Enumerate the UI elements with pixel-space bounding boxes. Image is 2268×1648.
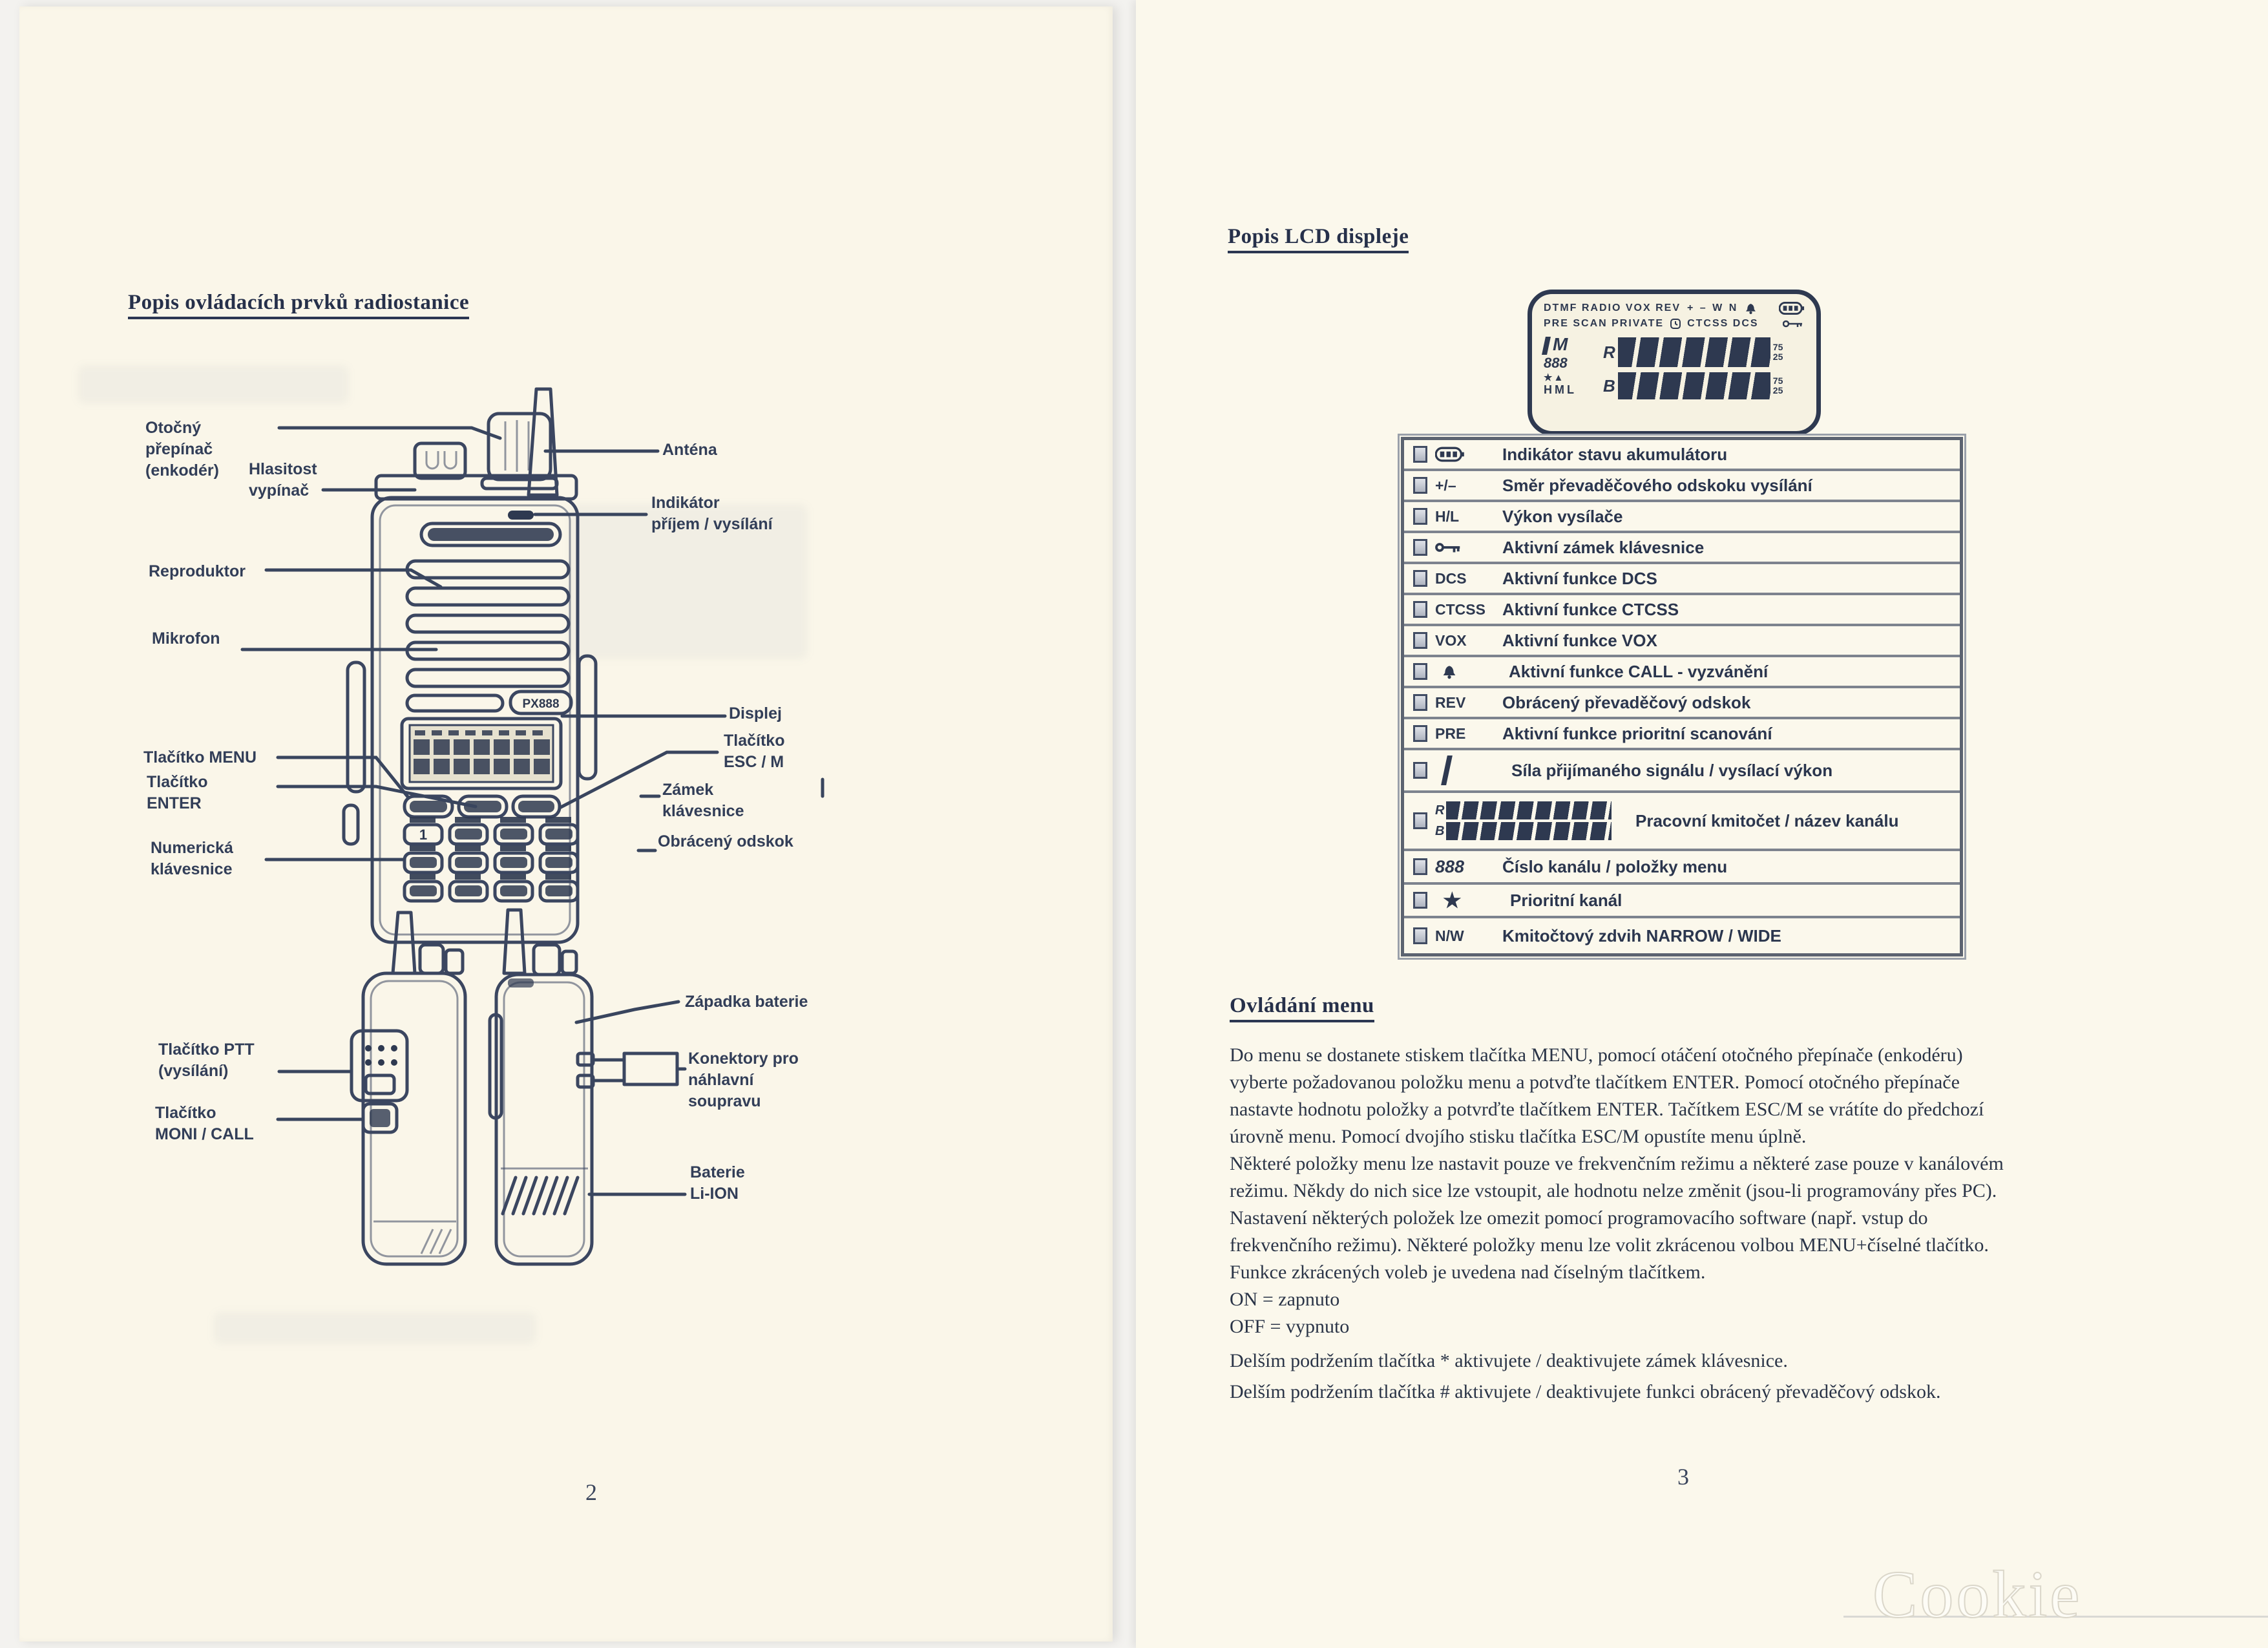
label-moni-call-button: Tlačítko MONI / CALL	[155, 1103, 254, 1145]
frequency-display-icon: R B	[1435, 801, 1635, 840]
label-headset-connectors: Konektory pro náhlavní soupravu	[688, 1048, 799, 1112]
label-volume-switch: Hlasitost vypínač	[249, 459, 317, 502]
lcd-symbol: DCS	[1435, 570, 1502, 587]
priority-star-icon: ★	[1435, 888, 1510, 913]
checkbox-mark-icon	[1413, 762, 1427, 779]
page-title-right: Popis LCD displeje	[1228, 225, 1409, 253]
table-row: VOX Aktivní funkce VOX	[1404, 624, 1960, 655]
checkbox-mark-icon	[1413, 539, 1427, 556]
lcd-symbol: H/L	[1435, 508, 1502, 525]
label-esc-button: Tlačítko ESC / M	[724, 730, 784, 773]
checkbox-mark-icon	[1413, 570, 1427, 587]
legend-label: Směr převaděčového odskoku vysílání	[1502, 476, 1812, 496]
checkbox-mark-icon	[1413, 446, 1427, 463]
lcd-tone-indicators: CTCSS DCS	[1687, 318, 1758, 330]
checkbox-mark-icon	[1413, 694, 1427, 711]
battery-pack	[503, 1178, 578, 1214]
checkbox-mark-icon	[1413, 508, 1427, 525]
table-row: H/L Výkon vysílače	[1404, 500, 1960, 531]
label-reverse-shift: Obrácený odskok	[658, 831, 793, 852]
table-row: N/W Kmitočtový zdvih NARROW / WIDE	[1404, 916, 1960, 953]
table-row: Aktivní zámek klávesnice	[1404, 531, 1960, 562]
label-enter-button: Tlačítko ENTER	[147, 772, 207, 814]
numeric-keypad: 1	[404, 817, 578, 901]
lcd-indicators-row2: PRE SCAN PRIVATE	[1544, 318, 1664, 330]
menu-shortcut-notes: Delším podržením tlačítka * aktivujete /…	[1230, 1346, 2244, 1408]
label-antenna: Anténa	[662, 439, 717, 461]
encoder-knob	[488, 414, 551, 480]
lcd-symbol: PRE	[1435, 725, 1502, 743]
lcd-symbol: +/–	[1435, 477, 1502, 494]
page-number-left: 2	[585, 1479, 597, 1506]
table-row: ★ Prioritní kanál	[1404, 882, 1960, 916]
checkbox-mark-icon	[1413, 632, 1427, 649]
side-view-right	[490, 910, 593, 1264]
lcd-priority-stars: ★▲	[1544, 372, 1598, 383]
function-buttons	[404, 796, 560, 817]
lcd-symbol: VOX	[1435, 632, 1502, 650]
rx-tx-indicator	[508, 511, 534, 520]
lcd-channel-digits: 888	[1544, 355, 1598, 372]
lcd-display-graphic: DTMF RADIO VOX REV + – W N PRE SCAN PRIV…	[1528, 290, 1821, 436]
label-battery: Baterie Li-ION	[690, 1162, 745, 1205]
legend-label: Kmitočtový zdvih NARROW / WIDE	[1502, 926, 1781, 946]
lcd-symbol: CTCSS	[1435, 601, 1502, 618]
legend-label: Aktivní funkce CTCSS	[1502, 600, 1679, 620]
table-row: 888 Číslo kanálu / položky menu	[1404, 849, 1960, 882]
legend-label: Síla přijímaného signálu / vysílací výko…	[1511, 761, 1832, 781]
checkbox-mark-icon	[1413, 477, 1427, 494]
clock-icon	[1670, 319, 1681, 329]
label-display: Displej	[729, 703, 782, 724]
model-label: PX888	[522, 697, 559, 711]
legend-label: Aktivní funkce prioritní scanování	[1502, 724, 1772, 744]
legend-label: Obrácený převaděčový odskok	[1502, 693, 1750, 713]
connector-bracket	[624, 1053, 677, 1084]
side-view-left	[352, 913, 465, 1264]
battery-latch	[508, 978, 534, 988]
lcd-indicators-row1: DTMF RADIO VOX REV	[1544, 302, 1681, 314]
label-ptt-button: Tlačítko PTT (vysílání)	[158, 1039, 255, 1082]
lcd-segment-row-top	[1618, 337, 1770, 367]
label-menu-button: Tlačítko MENU	[143, 747, 257, 768]
checkbox-mark-icon	[1413, 927, 1427, 944]
checkbox-mark-icon	[1413, 663, 1427, 680]
key-1: 1	[419, 827, 427, 843]
label-numeric-keypad: Numerická klávesnice	[151, 838, 233, 880]
lcd-seg-prefix-top: R	[1603, 343, 1615, 363]
lcd-segment-row-bottom	[1618, 372, 1770, 399]
table-row: REV Obrácený převaděčový odskok	[1404, 686, 1960, 717]
table-row: DCS Aktivní funkce DCS	[1404, 562, 1960, 593]
table-row: PRE Aktivní funkce prioritní scanování	[1404, 717, 1960, 748]
menu-section-heading: Ovládání menu	[1230, 994, 1374, 1022]
legend-label: Indikátor stavu akumulátoru	[1502, 445, 1727, 465]
label-battery-latch: Západka baterie	[685, 991, 808, 1013]
page-right: Popis LCD displeje DTMF RADIO VOX REV + …	[1136, 0, 2268, 1648]
front-display	[402, 719, 561, 788]
call-bell-icon	[1442, 664, 1457, 679]
side-rail-left	[348, 662, 364, 792]
label-rx-tx-indicator: Indikátor příjem / vysílání	[651, 492, 773, 535]
scanned-manual-spread: Popis ovládacích prvků radiostanice	[0, 0, 2268, 1648]
table-row: CTCSS Aktivní funkce CTCSS	[1404, 593, 1960, 624]
key-icon	[1783, 319, 1805, 329]
lcd-seg-prefix-bottom: B	[1603, 376, 1615, 396]
checkbox-mark-icon	[1413, 892, 1427, 909]
checkbox-mark-icon	[1413, 601, 1427, 618]
lcd-legend-table: Indikátor stavu akumulátoru +/– Směr pře…	[1401, 437, 1963, 956]
menu-paragraph: Do menu se dostanete stiskem tlačítka ME…	[1230, 1042, 2244, 1340]
table-row: Aktivní funkce CALL - vyzvánění	[1404, 655, 1960, 686]
legend-label: Číslo kanálu / položky menu	[1502, 857, 1727, 877]
lcd-frequency-area: R 7525 B 7525	[1603, 335, 1783, 401]
checkbox-mark-icon	[1413, 812, 1427, 829]
legend-label: Prioritní kanál	[1510, 891, 1622, 911]
table-row: Indikátor stavu akumulátoru	[1404, 440, 1960, 469]
lcd-shift-indicators: + – W N	[1687, 302, 1738, 314]
label-keylock: Zámek klávesnice	[662, 779, 744, 822]
lcd-symbol: REV	[1435, 694, 1502, 712]
watermark: Cookie 5.UZU	[1873, 1556, 2268, 1648]
battery-icon	[1779, 301, 1805, 315]
legend-label: Aktivní zámek klávesnice	[1502, 538, 1704, 558]
table-row: R B Pracovní kmitočet / název kanálu	[1404, 790, 1960, 849]
signal-meter-icon	[1542, 337, 1551, 355]
legend-label: Aktivní funkce DCS	[1502, 569, 1657, 589]
page-number-right: 3	[1677, 1463, 1689, 1490]
label-rotary-switch: Otočný přepínač (enkodér)	[145, 417, 219, 481]
call-bell-icon	[1745, 302, 1757, 314]
label-microphone: Mikrofon	[152, 628, 220, 650]
ptt-button	[352, 1031, 407, 1101]
signal-meter-icon	[1441, 755, 1453, 785]
key-icon	[1435, 541, 1464, 554]
legend-label: Pracovní kmitočet / název kanálu	[1635, 811, 1899, 831]
lcd-memory-m: M	[1553, 334, 1568, 355]
battery-icon	[1435, 447, 1465, 462]
table-row: Síla přijímaného signálu / vysílací výko…	[1404, 748, 1960, 790]
table-row: +/– Směr převaděčového odskoku vysílání	[1404, 469, 1960, 500]
lcd-symbol: 888	[1435, 857, 1502, 877]
legend-label: Aktivní funkce VOX	[1502, 631, 1657, 651]
radio-diagram: PX888	[19, 6, 1113, 1642]
legend-label: Výkon vysílače	[1502, 507, 1622, 527]
lcd-left-column: M 888 ★▲ HML	[1544, 335, 1598, 401]
legend-label: Aktivní funkce CALL - vyzvánění	[1509, 662, 1768, 682]
checkbox-mark-icon	[1413, 858, 1427, 875]
lcd-power-levels: HML	[1544, 383, 1598, 397]
label-speaker: Reproduktor	[149, 561, 246, 582]
page-left: Popis ovládacích prvků radiostanice	[19, 6, 1113, 1642]
volume-knob	[415, 443, 465, 478]
checkbox-mark-icon	[1413, 725, 1427, 742]
lcd-symbol: N/W	[1435, 927, 1502, 945]
